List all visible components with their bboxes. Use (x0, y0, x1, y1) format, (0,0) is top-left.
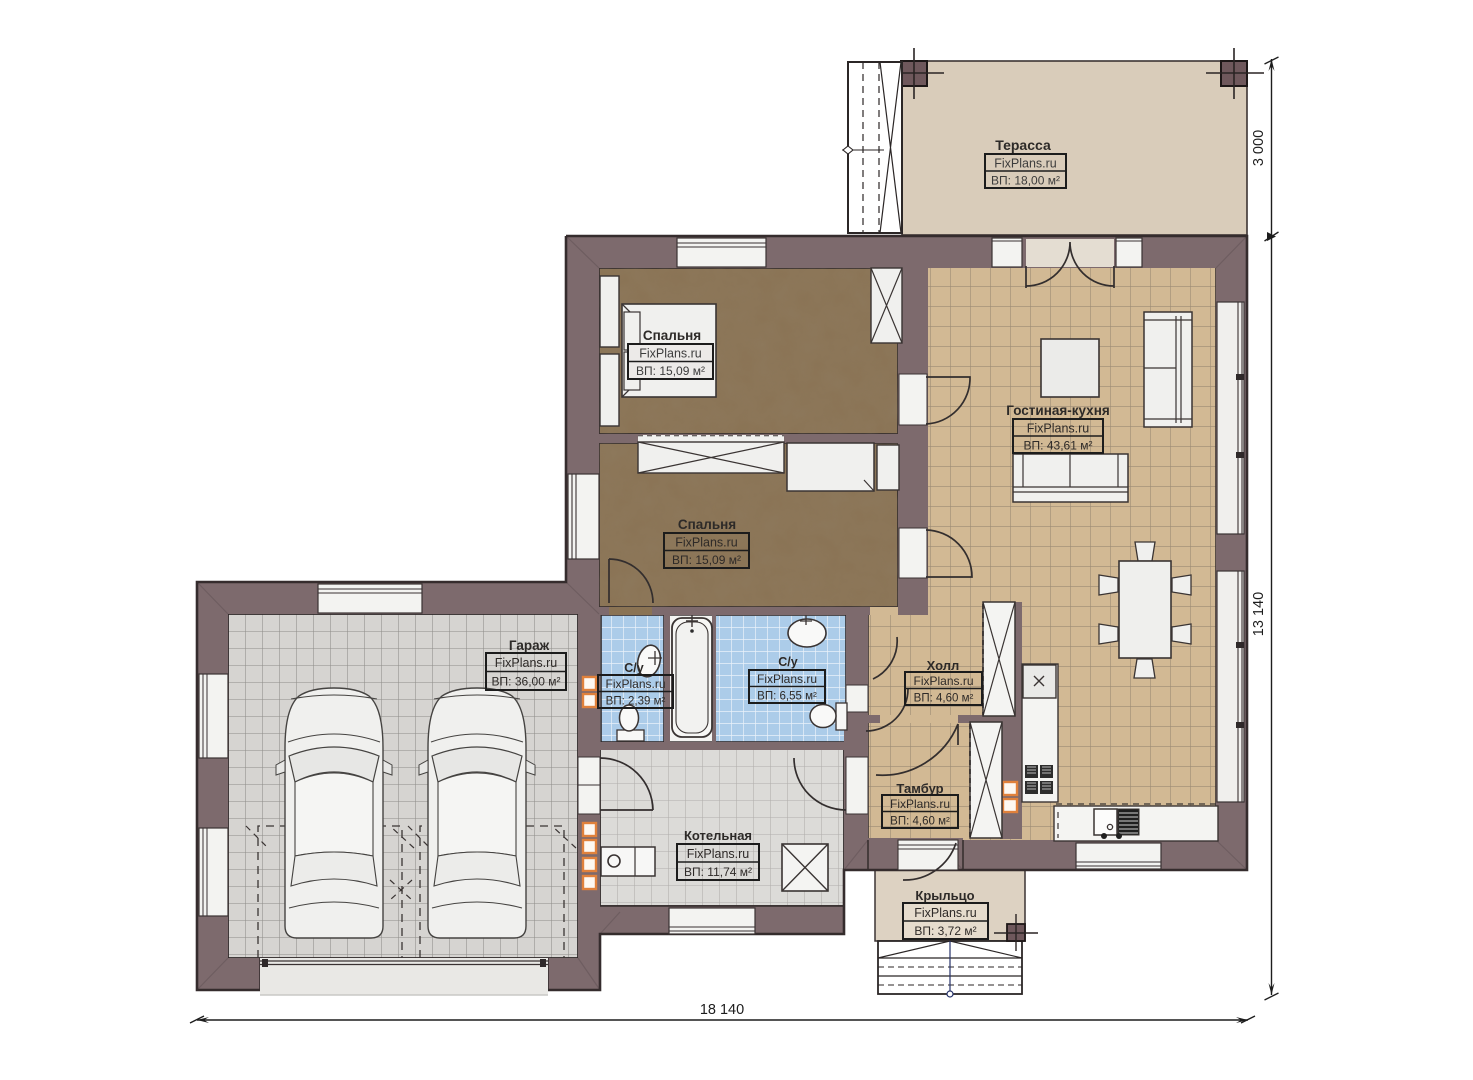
svg-text:18 140: 18 140 (700, 1002, 744, 1018)
svg-text:FixPlans.ru: FixPlans.ru (675, 536, 738, 550)
svg-text:ВП: 15,09 м²: ВП: 15,09 м² (672, 553, 741, 567)
svg-text:FixPlans.ru: FixPlans.ru (994, 157, 1057, 171)
svg-text:ВП: 2,39 м²: ВП: 2,39 м² (606, 696, 666, 708)
svg-text:FixPlans.ru: FixPlans.ru (605, 677, 665, 691)
svg-text:С/у: С/у (624, 661, 644, 675)
svg-text:FixPlans.ru: FixPlans.ru (639, 347, 702, 361)
svg-text:Терасса: Терасса (995, 137, 1051, 153)
svg-text:ВП: 4,60 м²: ВП: 4,60 м² (890, 816, 950, 828)
svg-text:Крыльцо: Крыльцо (915, 888, 974, 903)
svg-text:ВП: 6,55 м²: ВП: 6,55 м² (757, 691, 817, 703)
svg-text:FixPlans.ru: FixPlans.ru (1027, 422, 1090, 436)
svg-text:ВП: 15,09 м²: ВП: 15,09 м² (636, 364, 705, 378)
svg-text:Холл: Холл (927, 658, 960, 673)
svg-text:13 140: 13 140 (1251, 592, 1267, 636)
svg-text:FixPlans.ru: FixPlans.ru (890, 797, 950, 811)
svg-text:ВП: 36,00 м²: ВП: 36,00 м² (492, 675, 561, 689)
svg-text:Спальня: Спальня (678, 517, 736, 532)
svg-text:Тамбур: Тамбур (896, 781, 943, 796)
svg-text:3 000: 3 000 (1251, 130, 1267, 166)
svg-text:ВП: 3,72 м²: ВП: 3,72 м² (914, 924, 976, 938)
svg-text:ВП: 4,60 м²: ВП: 4,60 м² (914, 693, 974, 705)
svg-text:FixPlans.ru: FixPlans.ru (687, 847, 750, 861)
svg-text:Спальня: Спальня (643, 328, 701, 343)
svg-text:FixPlans.ru: FixPlans.ru (913, 674, 973, 688)
svg-text:ВП: 18,00 м²: ВП: 18,00 м² (991, 174, 1060, 188)
svg-text:Гостиная-кухня: Гостиная-кухня (1006, 403, 1109, 418)
svg-text:С/у: С/у (778, 655, 798, 669)
svg-text:FixPlans.ru: FixPlans.ru (914, 906, 977, 920)
svg-text:Котельная: Котельная (684, 828, 752, 843)
svg-text:FixPlans.ru: FixPlans.ru (757, 672, 817, 686)
svg-text:Гараж: Гараж (509, 638, 550, 653)
svg-text:ВП: 43,61 м²: ВП: 43,61 м² (1024, 439, 1093, 453)
svg-text:FixPlans.ru: FixPlans.ru (495, 656, 558, 670)
svg-text:ВП: 11,74 м²: ВП: 11,74 м² (684, 865, 752, 879)
